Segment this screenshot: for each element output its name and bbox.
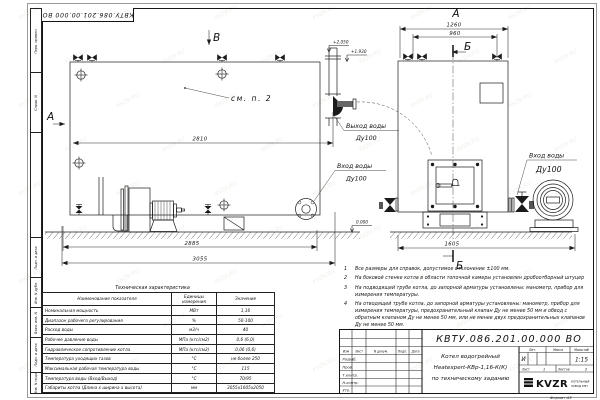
spec-table-section: Техническая характеристика Наименование … [42,285,263,393]
svg-text:Т.контр.: Т.контр. [343,374,359,378]
svg-text:Подп.: Подп. [398,350,407,354]
table-row: Габариты котла (Длина х ширина х высота)… [43,383,275,393]
boiler-front-view [379,52,578,240]
see-note-ref: см. п. 2 [231,94,272,103]
boiler-side-view [70,48,432,232]
manufacturer-logo: KVZR КОТЕЛЬНЫЙ ЗАВОД РЭП [524,378,589,390]
air-vent-icon [74,55,83,63]
svg-text:Лист: Лист [354,350,363,354]
svg-text:Масштаб: Масштаб [574,348,589,352]
label-water-outlet: Выход воды Ду100 [333,114,399,142]
svg-text:Heatexpert-КВр-1,16-К(К): Heatexpert-КВр-1,16-К(К) [434,365,508,371]
svg-text:Вход воды: Вход воды [337,163,372,170]
svg-text:ЗАВОД РЭП: ЗАВОД РЭП [571,384,588,388]
svg-text:Разраб.: Разраб. [343,358,357,362]
dim-1260: 1260 [446,23,461,29]
view-label-B: В [213,32,220,44]
anchor-bolt-icon [418,54,427,62]
dimensions: 2810 2885 3055 1260 960 1605 [62,23,575,267]
note-item: 2На боковой стенке котла в области топоч… [344,276,592,283]
table-row: Диапазон рабочего регулирования%50-100 [43,315,275,325]
svg-text:Вход воды: Вход воды [529,153,564,160]
spec-table-title: Техническая характеристика [42,285,263,292]
svg-text:Масса: Масса [553,348,563,352]
valve-icon [76,205,83,216]
note-item: 4На отводящей трубе котла, до запорной а… [344,302,592,330]
doc-number: КВТУ.086.201.00.000 ВО [436,334,582,345]
svg-text:+2.050: +2.050 [333,40,349,45]
table-row: Температура воды (Вход/Выход)°С70/95 [43,373,275,383]
svg-text:Ду100: Ду100 [355,135,377,142]
svg-text:Котел водогрейный: Котел водогрейный [441,354,500,360]
svg-text:Пров.: Пров. [343,366,353,370]
svg-text:Лист: Лист [521,368,530,372]
document-name: Котел водогрейный Heatexpert-КВр-1,16-К(… [432,354,510,382]
title-block: КВТУ.086.201.00.000 ВО Изм Лист N докум.… [339,329,594,394]
section-label-top: Б [464,41,471,53]
svg-text:Ду100: Ду100 [535,165,562,174]
anchor-bolt-icon [404,54,413,62]
drawing-sheet: 2810 2885 3055 1260 960 1605 [0,0,600,400]
svg-text:Утв.: Утв. [343,389,351,393]
margin-box: Подп. и дата [31,238,42,278]
margin-box: Подп. и дата [31,338,42,373]
inlet-valve [509,192,534,212]
view-arrow-A: А [46,111,54,123]
svg-text:Дата: Дата [410,350,419,354]
sheet-count: Лист 1 Листов 2 [521,368,588,372]
table-header-row: Наименование показателя Единицы измерени… [43,293,275,306]
table-row: Рабочее давление водыМПа (кгс/см2)0,6 (6… [43,335,275,345]
title-block-columns: Изм Лист N докум. Подп. Дата [343,350,420,354]
outlet-valve-front [379,198,398,212]
svg-text:И: И [521,357,526,363]
datum-target-icon [218,199,231,212]
table-row: Температура уходящих газов°Сне более 250 [43,354,275,364]
note-item: 1Все размеры для справок, допустимое отк… [344,267,592,274]
margin-box-spacer [31,133,42,238]
air-vent-icon [88,55,97,63]
dim-1605: 1605 [444,242,459,248]
valve-icon [205,205,212,216]
margin-box: Инв. N дубл. [31,278,42,308]
support-bracket [224,217,244,230]
elevation-1930: +1.930 [345,49,367,62]
table-row: Гидравлическое сопротивление котлаМПа (к… [43,344,275,354]
elevation-ground: 0.000 [350,220,372,233]
svg-text:1: 1 [543,368,545,372]
datum-target-icon [216,68,229,81]
boiler-base [423,212,487,228]
ground-line [45,232,572,239]
svg-text:Н.контр.: Н.контр. [343,381,359,385]
svg-text:КОТЕЛЬНЫЙ: КОТЕЛЬНЫЙ [571,379,589,384]
margin-box: Инв. N подл. [31,373,42,393]
svg-text:Изм: Изм [343,350,350,354]
datum-target-icon [75,69,88,82]
svg-text:+1.930: +1.930 [351,49,367,54]
pipe-labels: Выход воды Ду100 Вход воды Ду100 Вход во… [314,114,577,201]
logo-mark-icon [524,378,533,387]
air-vent-icon [276,55,285,63]
dim-2885: 2885 [184,241,199,247]
table-row: Номинальная мощностьМВт1,16 [43,306,275,316]
lit-mass-scale: Лит. Масса Масштаб И 1:15 [521,348,589,364]
svg-text:Лит.: Лит. [528,348,536,352]
air-vent-icon [218,55,227,63]
label-water-inlet-side: Вход воды Ду100 [314,163,386,201]
margin-box: Перв. примен. [31,9,42,73]
svg-text:N докум.: N докум. [374,350,388,354]
inlet-flange [296,199,317,220]
outlet-pipe [325,48,432,156]
notes-list: 1Все размеры для справок, допустимое отк… [344,267,592,333]
table-row: Расход водым3/ч40 [43,325,275,335]
svg-text:1:15: 1:15 [575,358,588,364]
dim-960: 960 [449,31,461,37]
svg-text:Листов: Листов [557,368,570,372]
view-label-A: А [451,8,459,20]
feeder-drive-motor [121,186,185,232]
title-block-grid: КВТУ.086.201.00.000 ВО Изм Лист N докум.… [340,330,593,393]
svg-text:2: 2 [585,368,588,372]
svg-text:Выход воды: Выход воды [346,123,386,130]
label-water-inlet-front: Вход воды Ду100 [517,153,577,196]
brand-name: KVZR [536,379,568,390]
door-emblem [453,179,459,185]
top-stamp-number: КВТУ.086.201.00.000 ВО [42,11,134,18]
inspection-opening [480,83,503,103]
svg-text:по техническому заданию: по техническому заданию [432,376,510,382]
margin-box: Взам. инв. N [31,308,42,338]
spec-table: Наименование показателя Единицы измерени… [42,292,275,393]
note-item: 3На подводящей трубе котла, до запорной … [344,286,592,300]
dim-3055: 3055 [192,257,207,263]
blower-fan [530,180,578,232]
margin-box: Справ. N [31,73,42,133]
svg-text:Ду100: Ду100 [345,176,367,183]
table-row: Максимальная рабочая температура воды°С1… [43,364,275,374]
dim-2810: 2810 [192,137,207,143]
elevation-2050: +2.050 [327,40,349,53]
top-stamp: КВТУ.086.201.00.000 ВО [42,8,134,22]
furnace-door [428,160,482,211]
format-note: Формат А3 [550,395,572,400]
frame-margin-column: Перв. примен. Справ. N Подп. и дата Инв.… [30,8,43,394]
datum-target-icon [73,157,86,170]
svg-text:0.000: 0.000 [356,220,368,225]
